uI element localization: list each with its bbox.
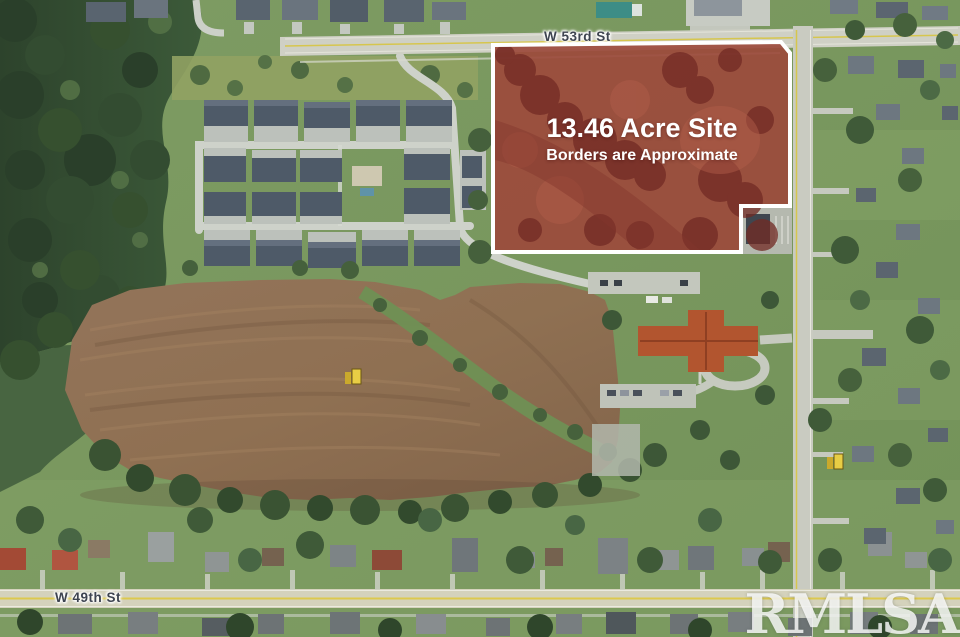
east-lawn-patch [806, 130, 960, 220]
court-pad [592, 424, 640, 476]
plowed-field [65, 279, 642, 525]
aerial-map-art [0, 0, 960, 637]
pool-building [596, 2, 632, 18]
pool [360, 188, 374, 196]
mls-watermark: RMLSA [744, 582, 958, 637]
site-acreage-title: 13.46 Acre Site [490, 113, 794, 144]
aerial-listing-photo: W 53rd St W 49th St 13.46 Acre Site Bord… [0, 0, 960, 637]
street-label-49th: W 49th St [55, 590, 121, 605]
site-label: 13.46 Acre Site Borders are Approximate [490, 113, 794, 165]
clubhouse [352, 166, 382, 186]
site-borders-note: Borders are Approximate [490, 147, 794, 165]
street-label-53rd: W 53rd St [544, 29, 611, 44]
